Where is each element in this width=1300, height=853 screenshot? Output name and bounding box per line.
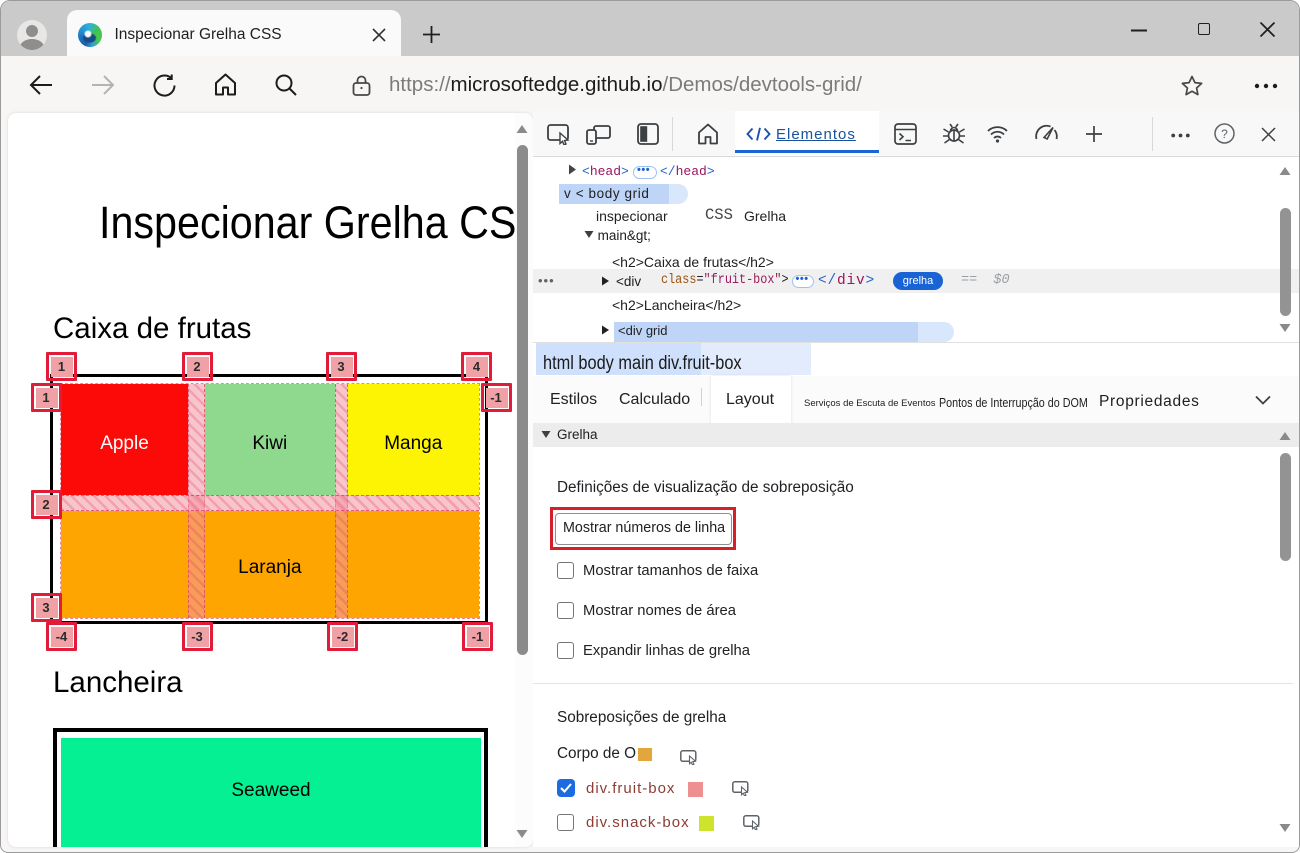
- svg-text:?: ?: [1221, 127, 1228, 141]
